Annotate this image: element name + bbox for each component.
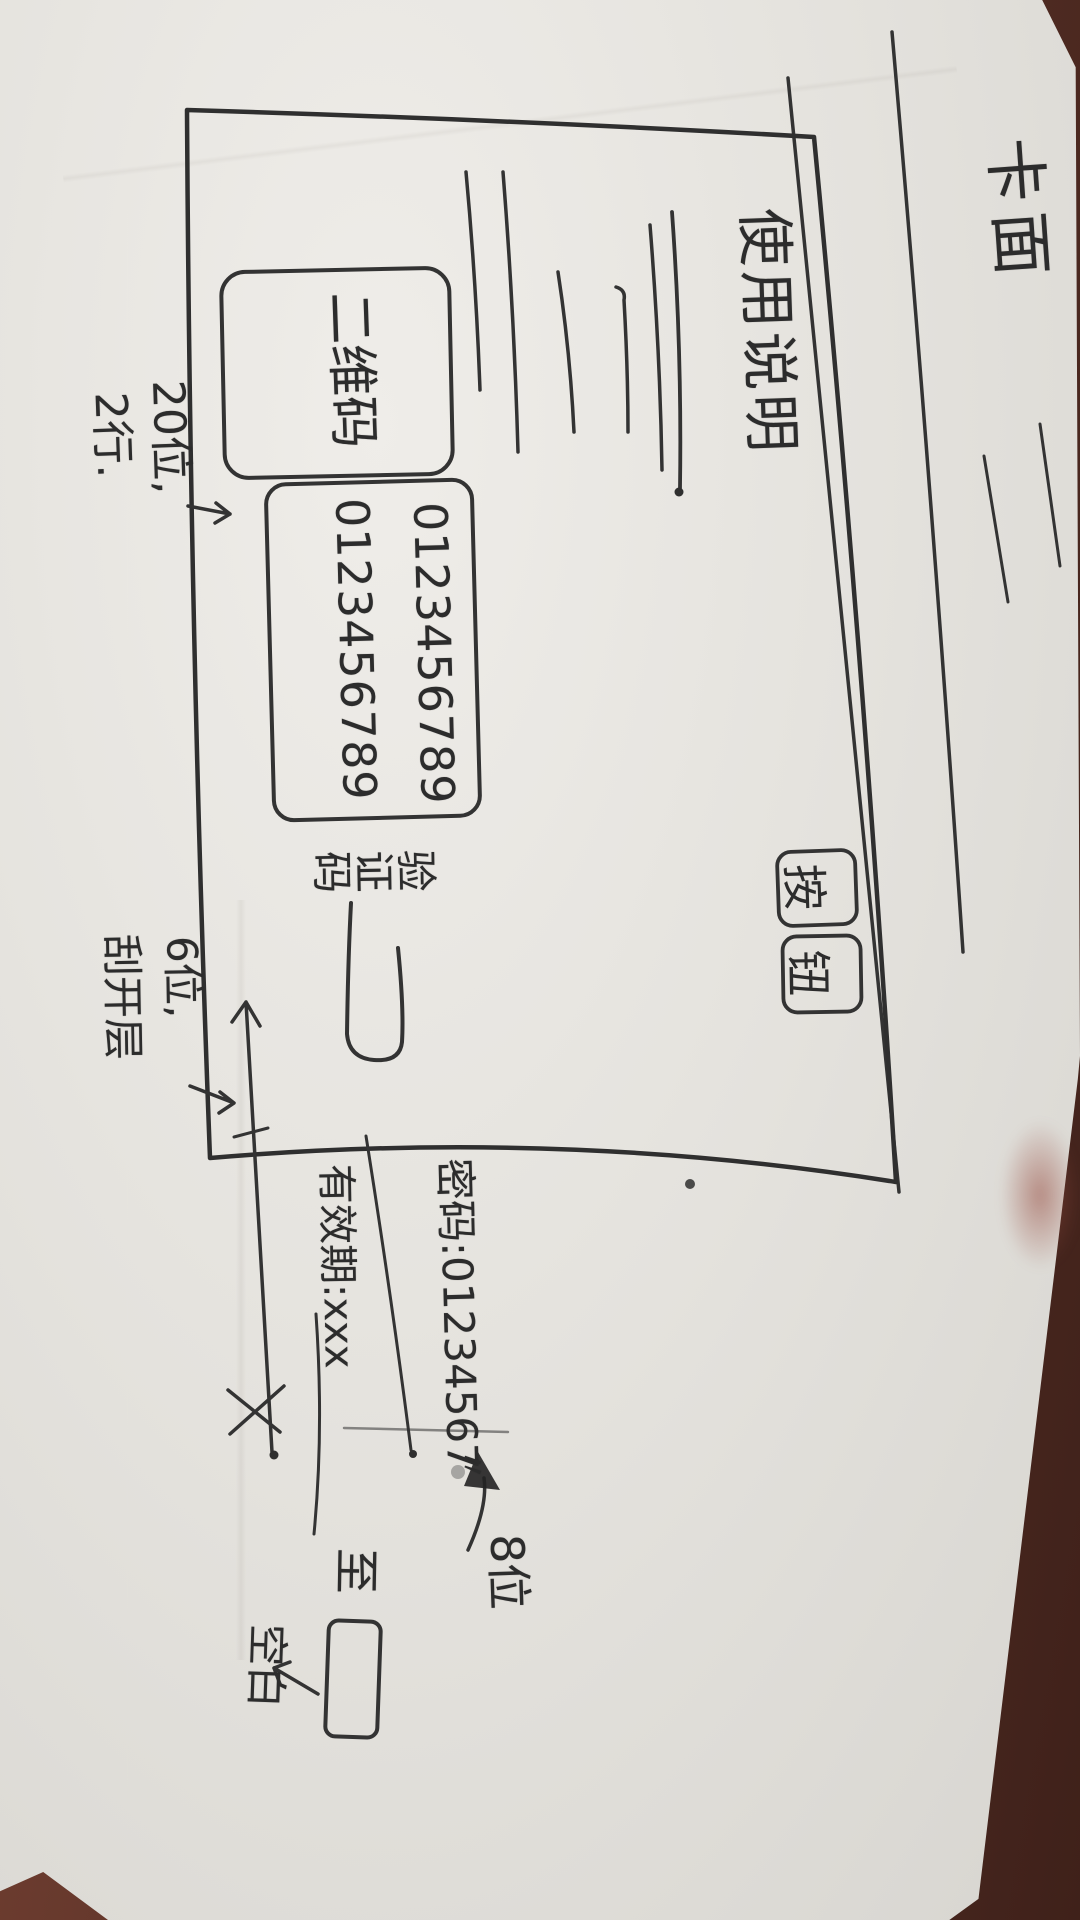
pen-dot bbox=[675, 488, 684, 497]
dialog-heading: 使用说明 bbox=[733, 207, 803, 457]
sketch-sheet-rotated: 卡面 使用说明 二维码 0123456789 0123456789 验证码 按 … bbox=[0, 0, 1080, 1920]
qr-box-label: 二维码 bbox=[321, 291, 381, 449]
text-line bbox=[672, 212, 680, 488]
button-char-2: 钮 bbox=[778, 949, 845, 996]
validity-note: 有效期:xxx bbox=[314, 1164, 360, 1369]
rows-note-arrow bbox=[188, 503, 230, 523]
code-note-arrow bbox=[190, 1086, 234, 1113]
pen-dot bbox=[409, 1450, 417, 1458]
x-scribble bbox=[228, 1386, 284, 1434]
page-title: 卡面 bbox=[978, 136, 1055, 288]
date-box bbox=[325, 1620, 381, 1738]
digit-row-1: 0123456789 bbox=[406, 501, 462, 805]
button-char-1: 按 bbox=[773, 863, 841, 911]
text-line bbox=[503, 172, 518, 452]
text-line bbox=[650, 225, 662, 470]
code-field-label: 验证码 bbox=[288, 845, 439, 892]
password-example: 密码:01234567 bbox=[432, 1157, 484, 1470]
pen-dot bbox=[685, 1179, 695, 1189]
digit-row-2: 0123456789 bbox=[328, 497, 384, 801]
rows-note-line1: 20位, bbox=[144, 379, 194, 495]
code-note-line2: 刮开层 bbox=[99, 934, 145, 1061]
pen-dot bbox=[270, 1451, 279, 1460]
text-line bbox=[616, 287, 628, 432]
to-label: 至 bbox=[331, 1548, 380, 1595]
short-stroke bbox=[984, 456, 1008, 602]
rows-note-line2: 2行. bbox=[86, 391, 135, 479]
short-stroke bbox=[1040, 424, 1060, 566]
photo-of-sketch: 卡面 使用说明 二维码 0123456789 0123456789 验证码 按 … bbox=[0, 0, 1080, 1920]
password-leader-line bbox=[366, 1136, 411, 1450]
code-note-line1: 6位, bbox=[159, 936, 205, 1019]
long-line-upper bbox=[892, 32, 963, 952]
long-line-lower bbox=[788, 78, 899, 1192]
length-note: 8位 bbox=[482, 1533, 533, 1610]
validity-arrow bbox=[232, 1002, 272, 1452]
code-field-box bbox=[347, 903, 403, 1060]
text-line bbox=[466, 172, 480, 390]
cross-tick bbox=[234, 1128, 268, 1137]
blank-label: 空白 bbox=[242, 1623, 289, 1709]
ditto-mark: 〃 bbox=[452, 1448, 488, 1482]
text-line bbox=[558, 272, 574, 432]
